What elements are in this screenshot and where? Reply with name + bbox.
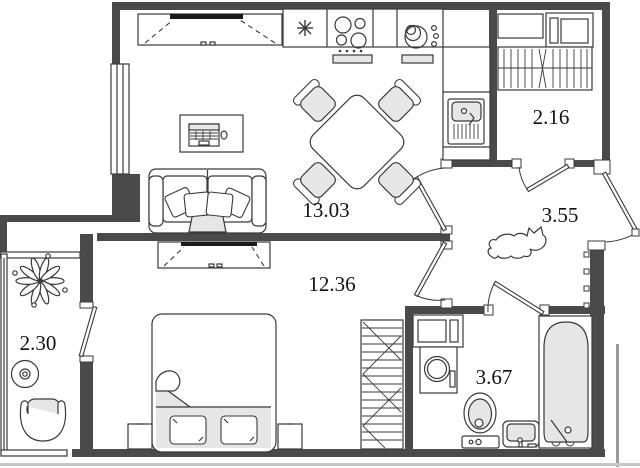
coffee-table-icon <box>12 361 39 388</box>
living-window <box>111 64 129 174</box>
outer-line-right <box>616 344 619 467</box>
tv-corridor-icon <box>158 242 270 268</box>
door-bathroom <box>488 281 544 314</box>
kitchen-sink-icon <box>448 99 484 144</box>
desk-icon <box>180 115 243 152</box>
armchair-icon <box>20 399 65 441</box>
fridge-icon <box>297 20 313 36</box>
room-label-bathroom: 3.67 <box>476 365 513 389</box>
room-label-hallway: 3.55 <box>542 203 579 227</box>
room-label-storage: 2.16 <box>533 105 570 129</box>
room-label-living: 13.03 <box>302 198 349 222</box>
door-storage <box>519 165 569 192</box>
balcony-door <box>79 307 96 357</box>
room-label-balcony: 2.30 <box>20 331 57 355</box>
wash-basin-icon <box>503 421 539 447</box>
bathtub-icon <box>539 316 592 448</box>
dining-set-icon <box>292 78 422 206</box>
storage-shelves <box>498 13 593 47</box>
door-corridor-hallway <box>414 242 446 300</box>
floor-plan: 13.03 12.36 3.55 2.16 2.30 3.67 <box>0 0 640 468</box>
door-living-hallway <box>414 168 446 231</box>
washer-cabinet <box>413 315 463 347</box>
coat-hooks-icon <box>584 252 589 325</box>
sofa-icon <box>149 169 266 233</box>
tv-living-icon <box>138 14 282 45</box>
outer-line-bottom <box>0 463 640 466</box>
room-label-corridor: 12.36 <box>308 272 355 296</box>
washing-machine-icon <box>420 347 457 393</box>
plant-icon <box>13 254 67 307</box>
bed-icon <box>152 314 276 452</box>
cat-icon <box>488 227 546 258</box>
storage-rail <box>498 47 592 90</box>
toilet-icon <box>462 393 499 448</box>
entrance-door <box>603 172 639 242</box>
wardrobe-icon <box>361 320 403 449</box>
